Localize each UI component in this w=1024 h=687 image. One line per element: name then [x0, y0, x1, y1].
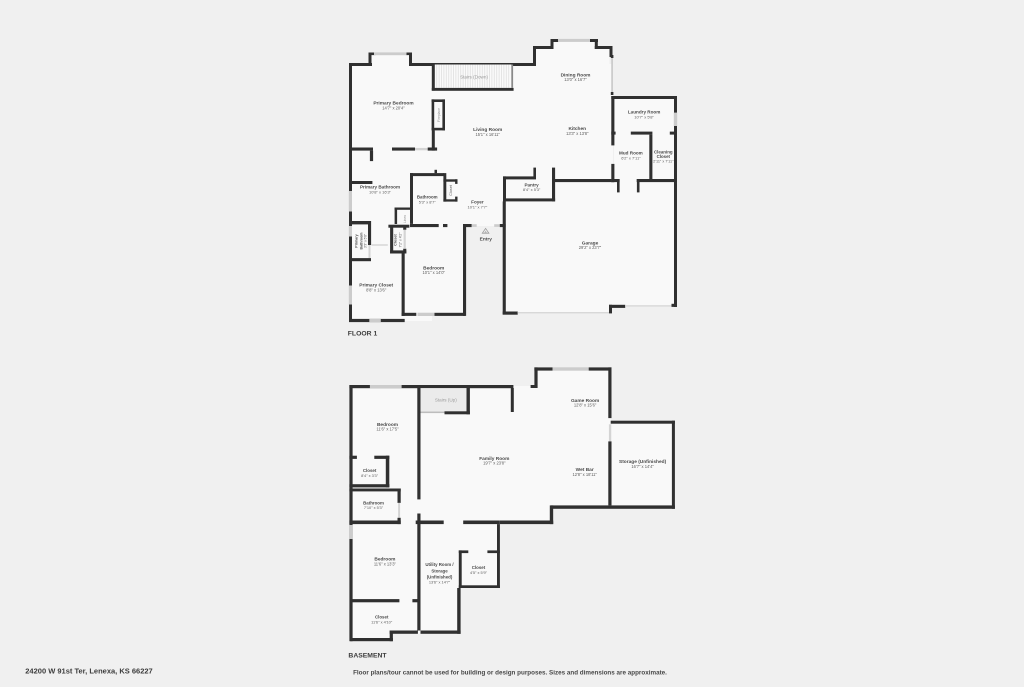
svg-text:Primary: Primary	[355, 234, 359, 247]
svg-text:12'8" x 15'6": 12'8" x 15'6"	[574, 403, 597, 408]
svg-text:8'4" x 3'3": 8'4" x 3'3"	[361, 473, 379, 478]
svg-text:12'8" x 18'11": 12'8" x 18'11"	[572, 472, 597, 477]
svg-text:11'6" x 4'10": 11'6" x 4'10"	[371, 619, 393, 624]
svg-text:Linen: Linen	[403, 215, 407, 223]
svg-text:3'3" x 5'8": 3'3" x 5'8"	[364, 234, 368, 248]
svg-text:8'8" x 13'6": 8'8" x 13'6"	[366, 287, 387, 292]
svg-text:Closet: Closet	[657, 154, 671, 159]
svg-text:14'7" x 20'4": 14'7" x 20'4"	[382, 105, 405, 110]
svg-text:Closet: Closet	[449, 184, 453, 196]
svg-text:10'1" x 14'0": 10'1" x 14'0"	[422, 270, 445, 275]
svg-text:10'8" x 16'3": 10'8" x 16'3"	[369, 189, 392, 194]
svg-text:Entry: Entry	[480, 237, 493, 243]
svg-text:15'1" x 16'11": 15'1" x 16'11"	[475, 132, 500, 137]
svg-text:BASEMENT: BASEMENT	[348, 653, 387, 660]
svg-text:Floor plans/tour cannot be use: Floor plans/tour cannot be used for buil…	[353, 670, 667, 677]
svg-text:19'7" x 23'8": 19'7" x 23'8"	[483, 461, 506, 466]
svg-text:FLOOR 1: FLOOR 1	[348, 331, 378, 338]
svg-text:13'6" x 14'7": 13'6" x 14'7"	[429, 579, 451, 584]
svg-text:Utility Room /: Utility Room /	[425, 562, 454, 567]
svg-text:7'10" x 5'3": 7'10" x 5'3"	[364, 505, 384, 510]
svg-text:24200 W 91st Ter, Lenexa, KS 6: 24200 W 91st Ter, Lenexa, KS 66227	[25, 667, 152, 676]
svg-text:11'6" x 17'5": 11'6" x 17'5"	[376, 427, 399, 432]
svg-text:10'7" x 5'8": 10'7" x 5'8"	[634, 114, 654, 119]
svg-text:Storage: Storage	[431, 568, 448, 573]
svg-text:11'6" x 13'3": 11'6" x 13'3"	[374, 561, 397, 566]
svg-text:29'2" x 23'7": 29'2" x 23'7"	[579, 245, 602, 250]
svg-text:13'0" x 16'7": 13'0" x 16'7"	[564, 77, 587, 82]
svg-text:Stairs (Up): Stairs (Up)	[435, 398, 457, 403]
svg-text:10'1" x 7'7": 10'1" x 7'7"	[468, 204, 488, 209]
svg-text:7'2" x 4'2": 7'2" x 4'2"	[398, 232, 402, 248]
svg-text:4'5" x 5'9": 4'5" x 5'9"	[470, 570, 488, 575]
svg-text:13'3" x 13'8": 13'3" x 13'8"	[566, 131, 589, 136]
svg-text:Closet: Closet	[394, 233, 398, 245]
svg-text:16'7" x 14'4": 16'7" x 14'4"	[631, 464, 654, 469]
svg-text:Fireplace: Fireplace	[437, 108, 441, 122]
svg-text:8'4" x 5'3": 8'4" x 5'3"	[523, 187, 541, 192]
svg-text:6'2" x 7'11": 6'2" x 7'11"	[621, 156, 641, 161]
svg-text:Stairs (Down): Stairs (Down)	[460, 74, 488, 79]
svg-text:5'3" x 8'7": 5'3" x 8'7"	[419, 200, 437, 205]
svg-text:2'11" x 7'11": 2'11" x 7'11"	[653, 160, 674, 164]
